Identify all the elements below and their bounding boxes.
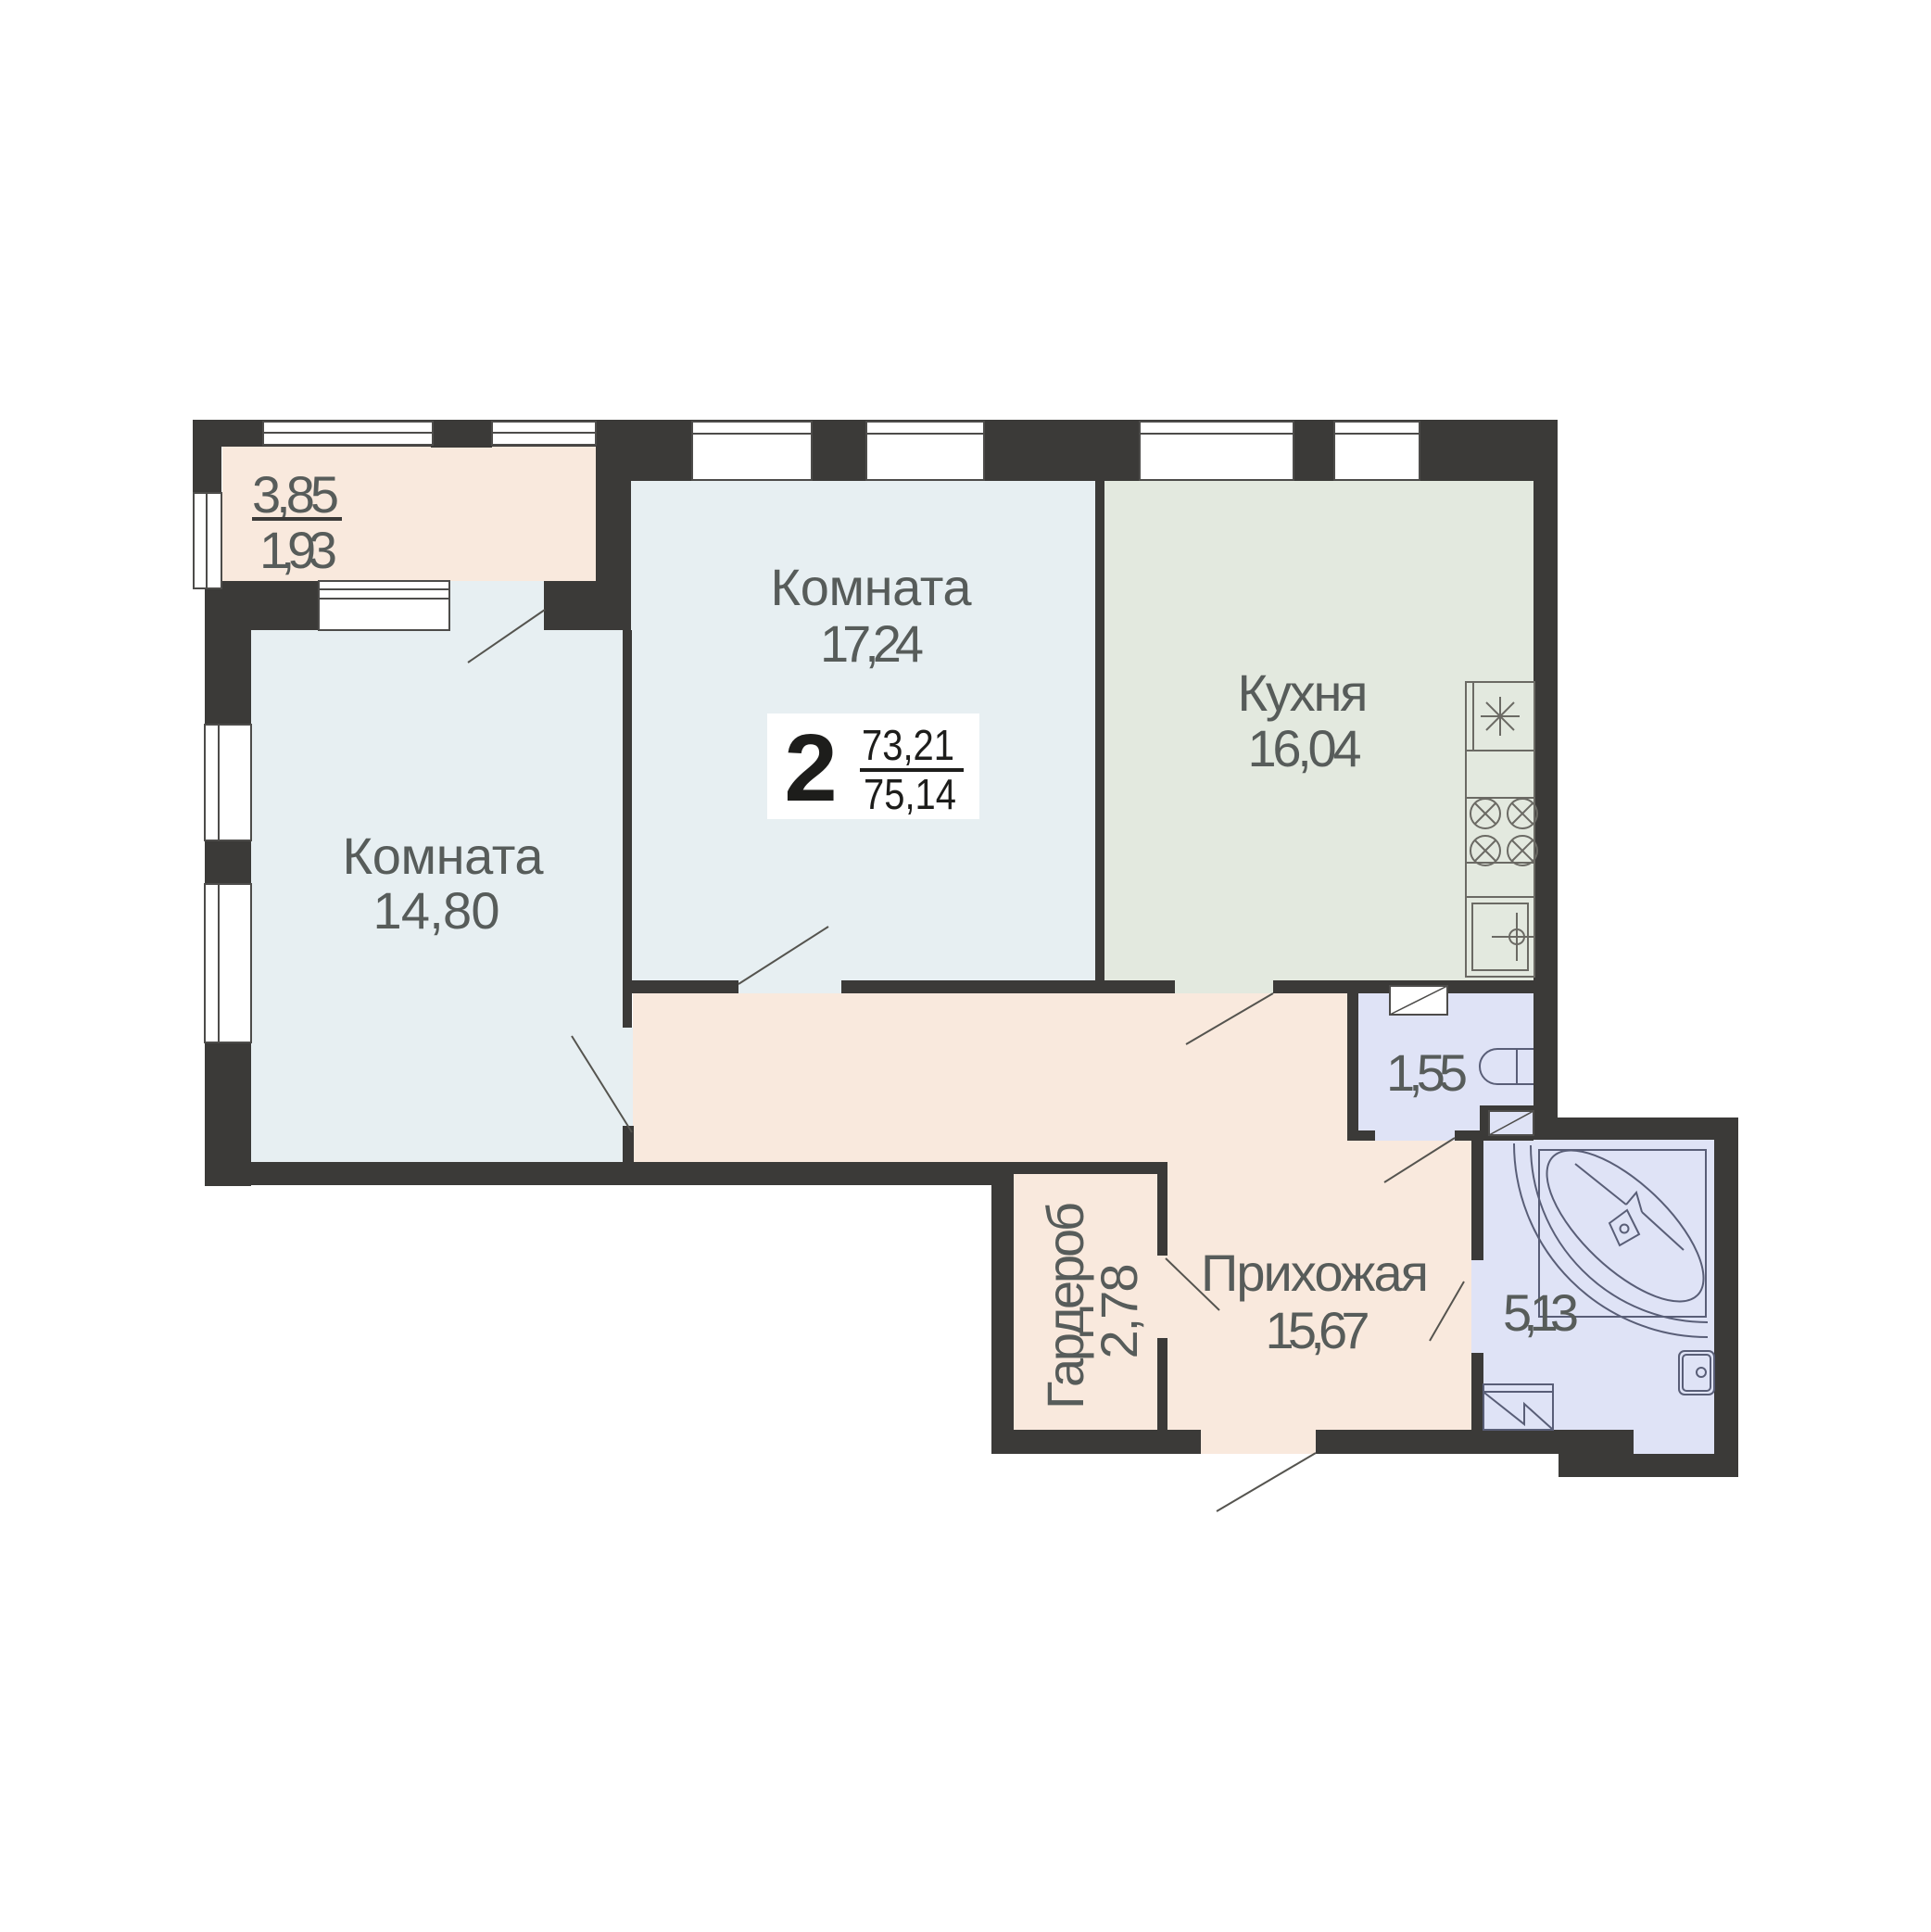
svg-text:Комната: Комната bbox=[343, 827, 545, 885]
svg-text:Прихожая: Прихожая bbox=[1201, 1244, 1429, 1302]
svg-text:1,93: 1,93 bbox=[259, 521, 337, 579]
svg-text:73,21: 73,21 bbox=[862, 721, 954, 769]
svg-text:16,04: 16,04 bbox=[1248, 719, 1362, 777]
svg-text:2: 2 bbox=[784, 714, 837, 821]
svg-text:3,85: 3,85 bbox=[252, 465, 339, 524]
svg-text:2,78: 2,78 bbox=[1090, 1264, 1148, 1359]
svg-text:Кухня: Кухня bbox=[1238, 663, 1369, 722]
svg-text:1,55: 1,55 bbox=[1386, 1043, 1468, 1102]
svg-text:Комната: Комната bbox=[771, 558, 973, 616]
svg-text:17,24: 17,24 bbox=[820, 614, 924, 673]
svg-text:75,14: 75,14 bbox=[864, 770, 956, 818]
svg-text:15,67: 15,67 bbox=[1266, 1301, 1370, 1359]
svg-text:Гардероб: Гардероб bbox=[1036, 1202, 1094, 1409]
svg-text:5,13: 5,13 bbox=[1503, 1283, 1579, 1342]
svg-text:14,80: 14,80 bbox=[373, 881, 500, 940]
